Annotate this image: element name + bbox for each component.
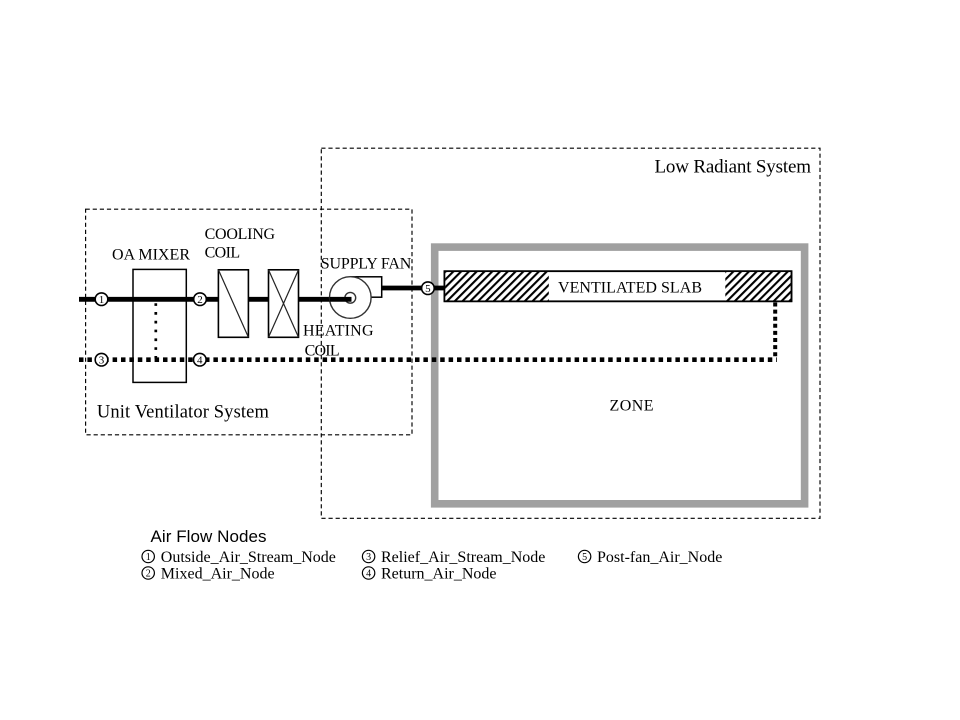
svg-text:OA MIXER: OA MIXER: [112, 246, 190, 263]
svg-text:2: 2: [146, 569, 151, 580]
svg-text:4: 4: [366, 569, 371, 580]
svg-text:COIL: COIL: [305, 343, 340, 360]
svg-text:Return_Air_Node: Return_Air_Node: [381, 566, 497, 583]
svg-text:Mixed_Air_Node: Mixed_Air_Node: [161, 566, 275, 583]
svg-text:5: 5: [425, 283, 431, 295]
svg-text:ZONE: ZONE: [610, 398, 654, 415]
svg-text:Outside_Air_Stream_Node: Outside_Air_Stream_Node: [161, 549, 336, 566]
svg-text:SUPPLY FAN: SUPPLY FAN: [321, 255, 412, 272]
svg-text:COIL: COIL: [205, 245, 241, 262]
svg-text:3: 3: [366, 552, 371, 563]
svg-text:VENTILATED SLAB: VENTILATED SLAB: [558, 279, 702, 296]
svg-text:4: 4: [197, 355, 203, 367]
svg-text:Relief_Air_Stream_Node: Relief_Air_Stream_Node: [381, 549, 545, 566]
svg-text:1: 1: [146, 552, 151, 563]
svg-text:1: 1: [99, 294, 105, 306]
svg-text:5: 5: [582, 552, 587, 563]
svg-text:2: 2: [197, 294, 203, 306]
svg-text:Post-fan_Air_Node: Post-fan_Air_Node: [597, 549, 722, 566]
svg-text:Air Flow Nodes: Air Flow Nodes: [151, 527, 267, 546]
svg-text:HEATING: HEATING: [303, 322, 374, 339]
svg-text:3: 3: [99, 355, 105, 367]
svg-text:Low Radiant System: Low Radiant System: [655, 157, 812, 178]
svg-text:COOLING: COOLING: [205, 226, 276, 243]
svg-text:Unit Ventilator System: Unit Ventilator System: [97, 403, 270, 423]
